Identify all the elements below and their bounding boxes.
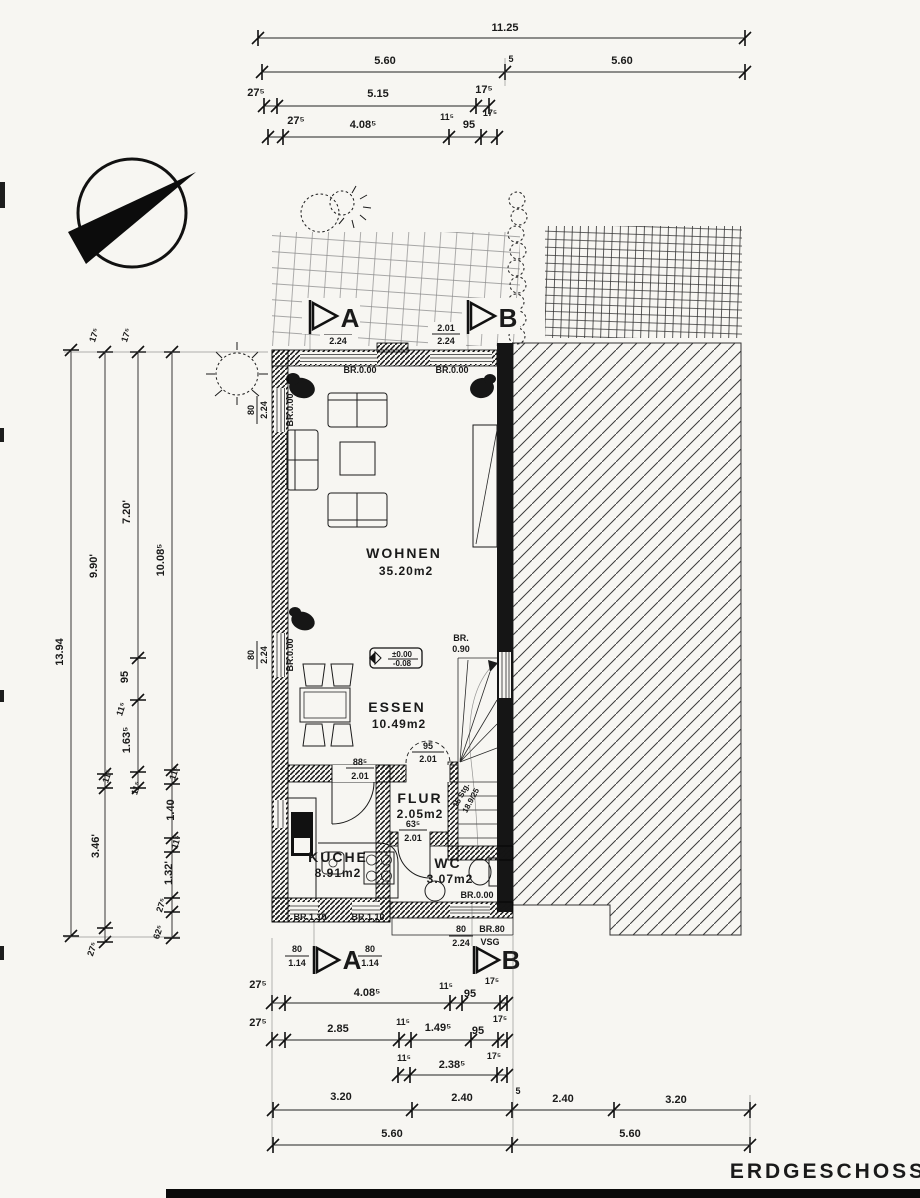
svg-text:2.01: 2.01 (404, 833, 422, 843)
svg-text:2.24: 2.24 (259, 646, 269, 664)
shrubs (286, 373, 496, 634)
svg-text:2.40: 2.40 (451, 1092, 472, 1104)
svg-text:1.40: 1.40 (165, 799, 177, 820)
side-window-dim-2: 80 2.24 (246, 641, 269, 669)
furniture-wohnen (287, 393, 497, 547)
svg-text:80: 80 (246, 405, 256, 415)
flur-wc-wall-r (430, 832, 448, 846)
dim-top-row-4: 27⁵ 4.08⁵ 11⁵ 95 17⁵ (262, 108, 503, 145)
svg-text:5.15: 5.15 (367, 88, 388, 100)
dim-bottom-row-1: 27⁵ 4.08⁵ 11⁵ 95 17⁵ (249, 976, 513, 1011)
svg-text:2.01: 2.01 (437, 323, 455, 333)
room-wohnen-name: WOHNEN (366, 545, 442, 561)
svg-text:11⁵: 11⁵ (440, 112, 454, 122)
dim-left-col-1: 13.94 (54, 344, 79, 942)
flur-wc-wall-l (390, 832, 398, 846)
svg-text:3.46': 3.46' (90, 834, 102, 858)
svg-text:88⁵: 88⁵ (353, 757, 367, 767)
svg-text:3.20: 3.20 (330, 1091, 351, 1103)
stairs (458, 658, 498, 850)
svg-text:62⁵: 62⁵ (151, 924, 165, 941)
level-marker: ±0.00 -0.08 (369, 648, 422, 668)
svg-text:10.08⁵: 10.08⁵ (155, 544, 167, 577)
dim-bottom-row-5: 5.60 5.60 (267, 1128, 756, 1153)
kitchen-window-dim-2: 80 1.14 (358, 944, 382, 968)
svg-text:2.01: 2.01 (419, 754, 437, 764)
side-window-dim-1: 80 2.24 (246, 396, 269, 424)
svg-text:80: 80 (456, 924, 466, 934)
svg-text:5.60: 5.60 (611, 55, 632, 67)
br-wc: BR.0.00 (460, 890, 493, 900)
svg-text:5.60: 5.60 (381, 1128, 402, 1140)
dim-bottom-row-4: 3.20 2.40 5 2.40 3.20 (267, 1086, 756, 1118)
svg-text:27⁵: 27⁵ (247, 87, 264, 99)
svg-text:7.20': 7.20' (121, 500, 133, 524)
dim-left-col-3: 17⁵ 7.20' 95 11⁵ 1.63⁵ 11⁵ (114, 327, 146, 796)
svg-text:95: 95 (464, 988, 476, 1000)
top-window-1 (300, 352, 377, 364)
svg-text:11⁵: 11⁵ (167, 765, 181, 781)
svg-text:2.40: 2.40 (552, 1093, 573, 1105)
svg-text:11⁵: 11⁵ (439, 981, 453, 991)
br-left-2: BR.0.00 (285, 638, 295, 671)
section-marker-bottom-a: A (314, 922, 362, 975)
svg-text:11⁵: 11⁵ (397, 1053, 411, 1063)
floor-plan-drawing: ±0.00 -0.08 WOHNEN 35.20m2 ESSEN 10.49m2… (0, 0, 920, 1198)
svg-text:2.24: 2.24 (329, 336, 347, 346)
drawing-title: ERDGESCHOSS (730, 1160, 920, 1183)
dim-top-row-1: 11.25 (252, 22, 751, 46)
room-wc-name: WC (434, 855, 461, 871)
svg-text:3.20: 3.20 (665, 1094, 686, 1106)
svg-text:5.60: 5.60 (619, 1128, 640, 1140)
svg-text:2.24: 2.24 (452, 938, 470, 948)
level-upper: ±0.00 (392, 650, 413, 659)
svg-text:2.38⁵: 2.38⁵ (439, 1059, 466, 1071)
svg-text:80: 80 (365, 944, 375, 954)
entry-door-window (450, 904, 490, 916)
svg-text:A: A (343, 945, 362, 975)
svg-text:A: A (341, 303, 360, 333)
svg-text:17⁵: 17⁵ (119, 327, 133, 344)
stair-walkline-arrow (488, 660, 498, 672)
svg-text:2.85: 2.85 (327, 1023, 348, 1035)
svg-text:17⁵: 17⁵ (485, 976, 499, 986)
svg-text:17⁵: 17⁵ (87, 327, 101, 344)
svg-text:11⁵: 11⁵ (169, 834, 183, 850)
svg-text:1.49⁵: 1.49⁵ (425, 1022, 452, 1034)
svg-text:17⁵: 17⁵ (483, 108, 497, 118)
svg-text:1.32': 1.32' (163, 861, 175, 885)
dim-top-row-3: 27⁵ 5.15 17⁵ (247, 84, 495, 114)
top-window-dim-2: 2.01 2.24 (428, 322, 466, 348)
svg-text:95: 95 (472, 1025, 484, 1037)
top-window-2 (430, 352, 492, 364)
svg-text:17⁵: 17⁵ (487, 1051, 501, 1061)
svg-text:5.60: 5.60 (374, 55, 395, 67)
tree-left (206, 342, 268, 405)
tree-spikes (339, 186, 371, 228)
room-kueche-area: 8.91m2 (315, 866, 362, 880)
svg-text:27⁵: 27⁵ (249, 979, 266, 991)
br-stair-a: BR. (453, 633, 469, 643)
svg-text:11⁵: 11⁵ (129, 780, 143, 796)
svg-text:B: B (502, 945, 521, 975)
svg-text:17⁵: 17⁵ (475, 84, 492, 96)
svg-text:27⁵: 27⁵ (287, 115, 304, 127)
level-lower: -0.08 (393, 659, 412, 668)
br-top-1: BR.0.00 (343, 365, 376, 375)
br-kitchen-1: BR.1.10 (293, 912, 326, 922)
svg-text:11⁵: 11⁵ (396, 1017, 410, 1027)
neighbour-unit-hatch (513, 343, 741, 935)
svg-text:80: 80 (292, 944, 302, 954)
svg-text:BR.80: BR.80 (479, 924, 505, 934)
svg-text:13.94: 13.94 (54, 637, 66, 665)
tree-top (301, 186, 371, 232)
room-wc-area: 3.07m2 (427, 872, 474, 886)
svg-text:5: 5 (515, 1086, 520, 1096)
svg-text:63⁵: 63⁵ (406, 819, 420, 829)
svg-text:11⁵: 11⁵ (114, 701, 128, 717)
svg-text:2.24: 2.24 (437, 336, 455, 346)
svg-text:9.90': 9.90' (88, 554, 100, 578)
svg-text:5: 5 (508, 54, 513, 64)
room-wohnen-area: 35.20m2 (379, 564, 433, 578)
north-arrow (68, 159, 196, 267)
shutter-box (377, 343, 408, 352)
svg-text:VSG: VSG (480, 937, 499, 947)
dim-left-col-4: 10.08⁵ 11⁵ 1.40 11⁵ 1.32' 27⁵ 62⁵ (151, 346, 183, 944)
dim-bottom-row-2: 27⁵ 2.85 11⁵ 1.49⁵ 95 17⁵ (249, 1014, 513, 1048)
svg-text:11.25: 11.25 (492, 22, 519, 34)
furniture-essen (300, 664, 353, 746)
dim-left-col-2: 17⁵ 9.90' 11⁵ 3.46' 27⁵ (85, 327, 114, 958)
svg-text:4.08⁵: 4.08⁵ (350, 119, 377, 131)
svg-text:B: B (499, 303, 518, 333)
party-wall (497, 343, 513, 912)
svg-text:95: 95 (463, 119, 475, 131)
svg-text:2.01: 2.01 (351, 771, 369, 781)
br-kitchen-2: BR.1.10 (351, 912, 384, 922)
svg-text:1.63⁵: 1.63⁵ (121, 727, 133, 754)
room-flur-name: FLUR (397, 790, 442, 806)
svg-text:17⁵: 17⁵ (493, 1014, 507, 1024)
room-essen-area: 10.49m2 (372, 717, 426, 731)
left-niche (274, 800, 286, 828)
entry-dim: 80 2.24 BR.80 VSG (449, 924, 505, 948)
dim-bottom-row-3: 11⁵ 2.38⁵ 17⁵ (392, 1051, 513, 1083)
stair-window (499, 652, 511, 698)
kitchen-window-dim-1: 80 1.14 (285, 944, 309, 968)
br-stair-b: 0.90 (452, 644, 470, 654)
svg-text:95: 95 (119, 671, 131, 683)
svg-text:27⁵: 27⁵ (154, 897, 168, 914)
svg-text:95: 95 (423, 741, 433, 751)
svg-text:4.08⁵: 4.08⁵ (354, 987, 381, 999)
svg-text:11⁵: 11⁵ (100, 768, 114, 784)
svg-text:1.14: 1.14 (361, 958, 379, 968)
floor-plan-scan: ±0.00 -0.08 WOHNEN 35.20m2 ESSEN 10.49m2… (0, 0, 920, 1198)
flur-top-wall-l (390, 765, 406, 782)
room-essen-name: ESSEN (368, 699, 425, 715)
room-kueche-name: KUCHE (308, 849, 368, 865)
br-left-1: BR.0.00 (285, 393, 295, 426)
svg-text:27⁵: 27⁵ (249, 1017, 266, 1029)
svg-text:2.24: 2.24 (259, 401, 269, 419)
svg-text:27⁵: 27⁵ (85, 941, 99, 958)
svg-text:80: 80 (246, 650, 256, 660)
br-top-2: BR.0.00 (435, 365, 468, 375)
svg-text:1.14: 1.14 (288, 958, 306, 968)
dim-top-row-2: 5.60 5 5.60 (256, 54, 751, 86)
